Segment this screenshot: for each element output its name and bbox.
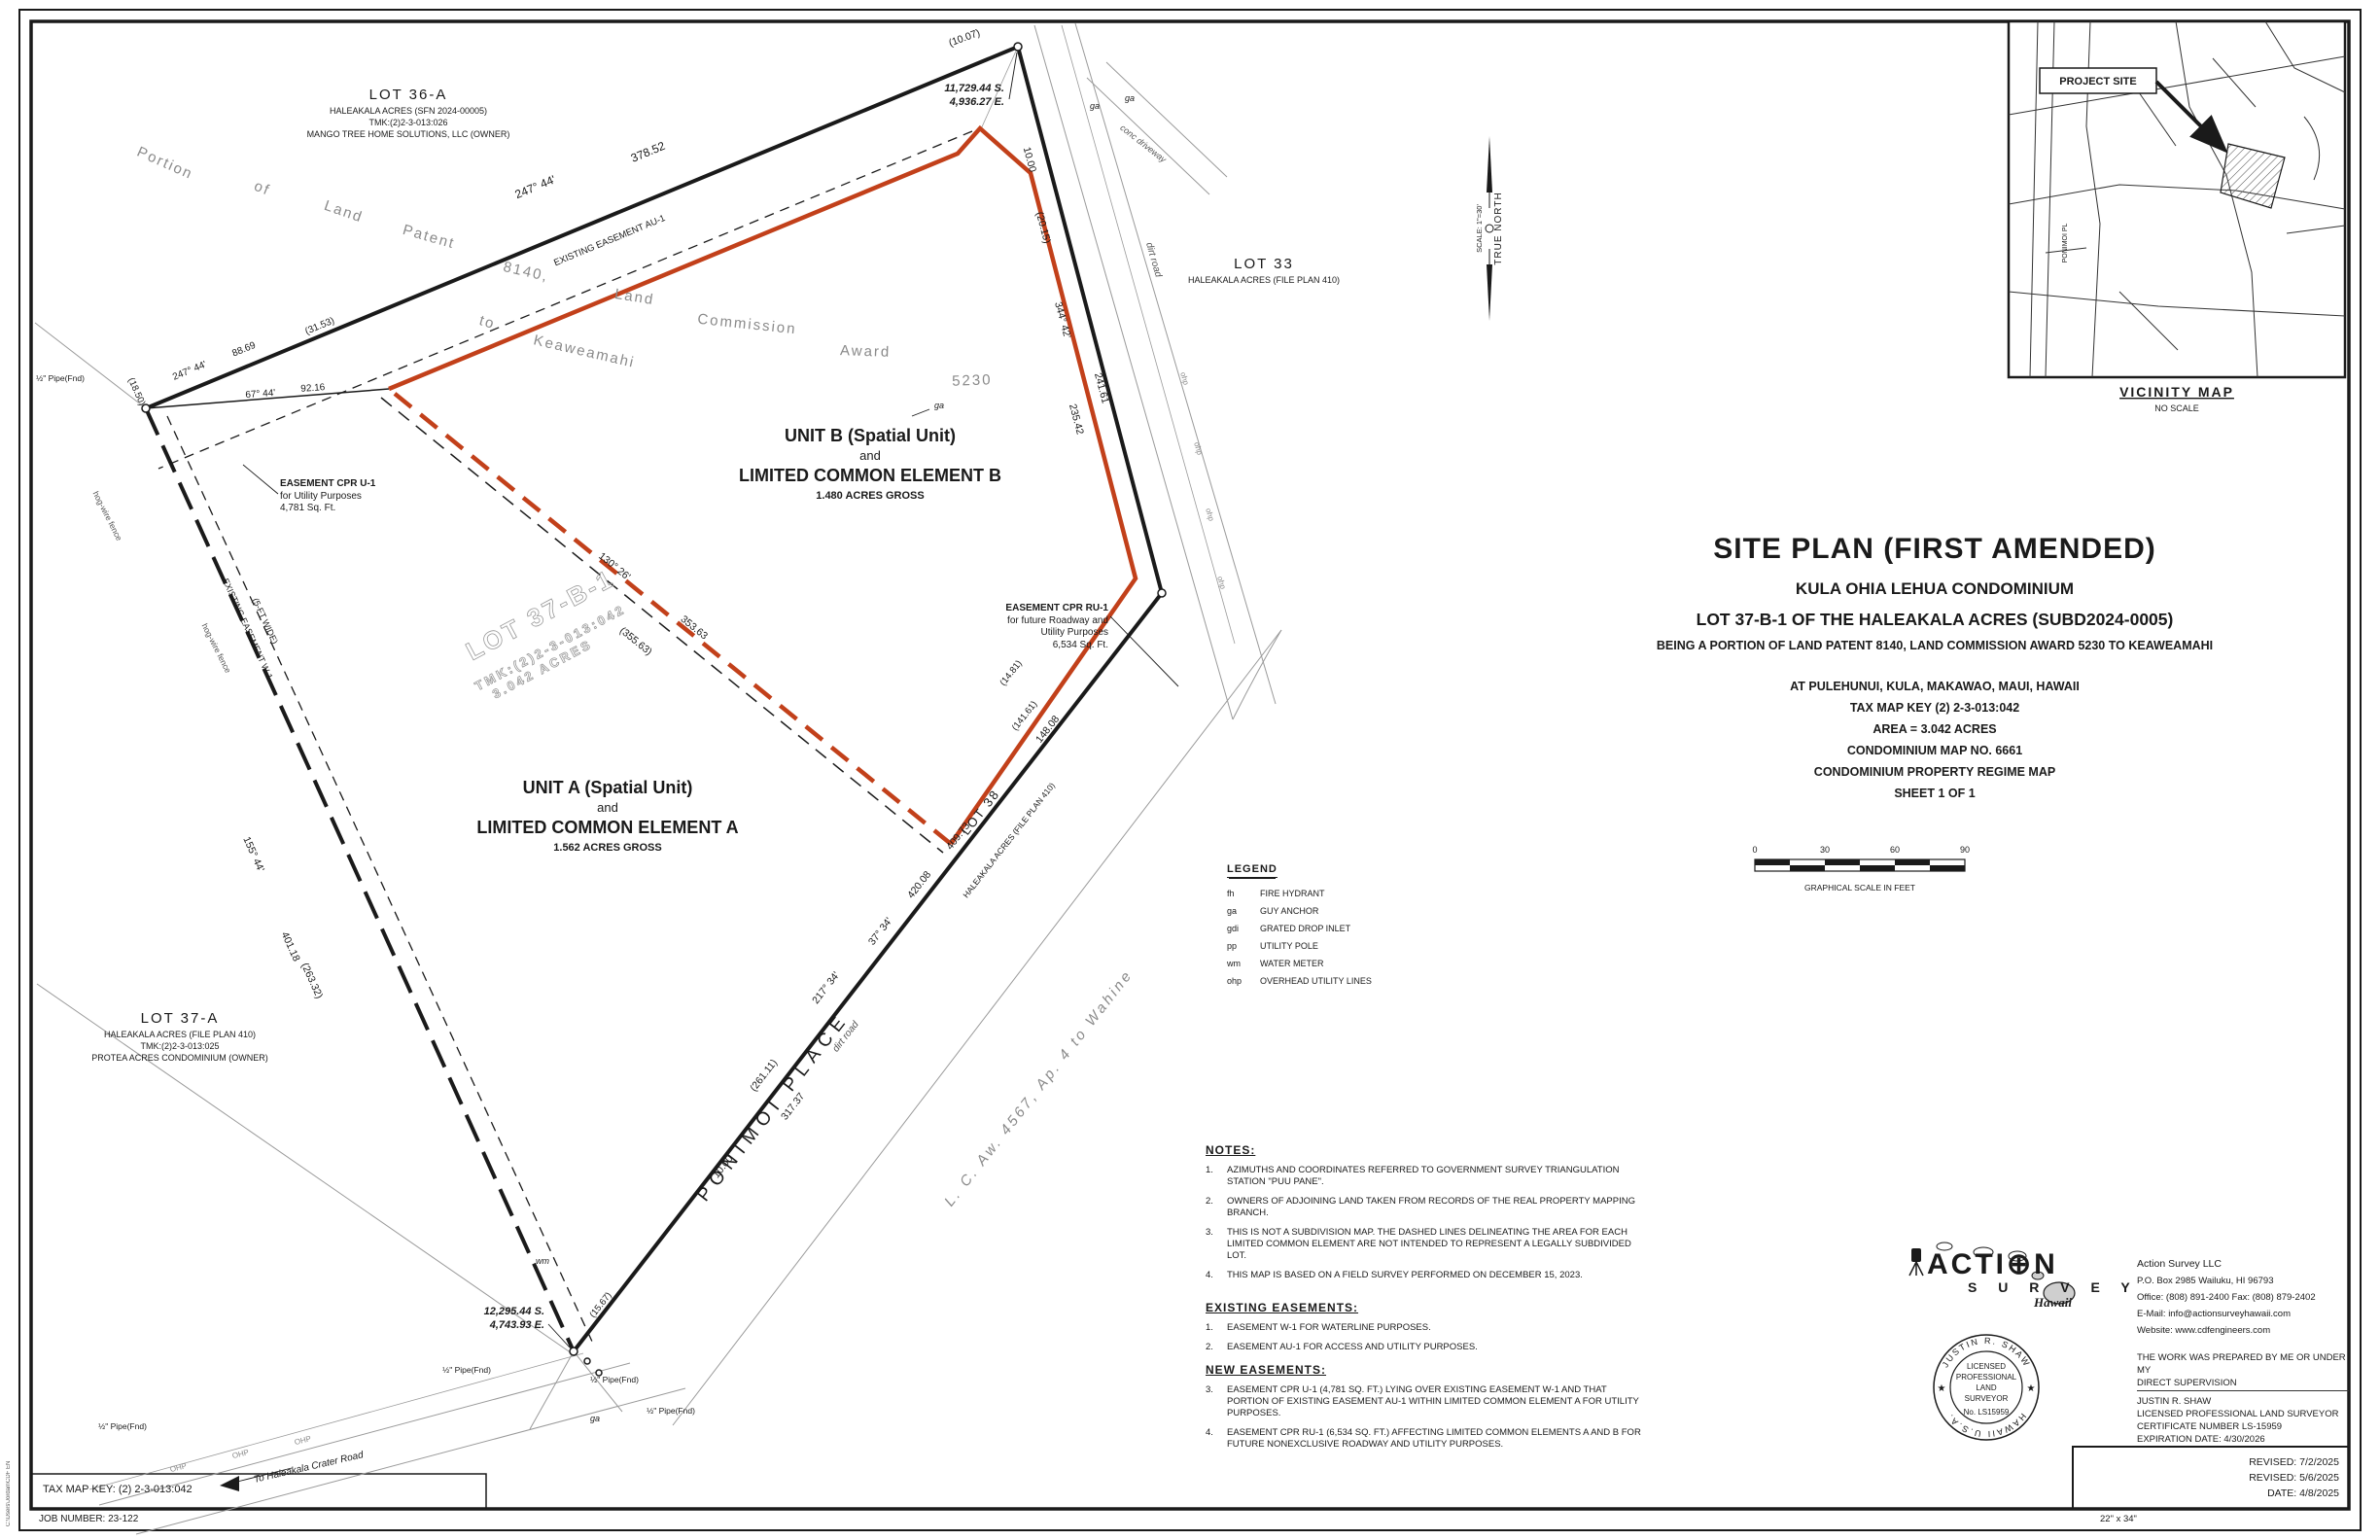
condo-map-line: CONDOMINIUM MAP NO. 6661 [1526,744,2343,757]
unit-a-lce: LIMITED COMMON ELEMENT A [418,818,797,838]
coord-bottom-n: 12,295.44 S. [436,1305,544,1318]
stamp-star-right: ★ [2027,1383,2036,1394]
existing-easements-title: EXISTING EASEMENTS: [1206,1301,1648,1314]
legend-row: gaGUY ANCHOR [1227,902,1470,920]
easement-item: 4.EASEMENT CPR RU-1 (6,534 SQ. FT.) AFFE… [1206,1427,1648,1451]
lot-37a-title: LOT 37-A [53,1009,306,1029]
easement-number: 4. [1206,1427,1227,1451]
legend-label: GRATED DROP INLET [1260,920,1350,937]
surveyor-title: LICENSED PROFESSIONAL LAND SURVEYOR [2137,1408,2349,1420]
legend-label: WATER METER [1260,955,1324,972]
lot-36a-block: LOT 36-A HALEAKALA ACRES (SFN 2024-00005… [224,86,593,140]
firm-logo: ACTI⊕N S U R V E Y Hawaii [1927,1250,2151,1311]
easement-item: 2.EASEMENT AU-1 FOR ACCESS AND UTILITY P… [1206,1342,1648,1353]
right-dist-red: 235.42 [1067,402,1086,436]
ohp-label-s1: OHP [169,1461,188,1474]
easement-item: 1.EASEMENT W-1 FOR WATERLINE PURPOSES. [1206,1322,1648,1334]
tax-map-key-note: TAX MAP KEY: (2) 2-3-013:042 [43,1484,192,1495]
boundary-lot37b1 [146,47,1162,1351]
ponimoi-dist1: 420.08 [905,869,933,901]
lot-37a-line3: TMK:(2)2-3-013:025 [53,1040,306,1052]
note-number: 4. [1206,1270,1227,1281]
bearing-labels: 247° 44' 378.52 EXISTING EASEMENT AU-1 2… [125,27,1111,1320]
logo-action-text: ACTI⊕N [1927,1250,2151,1279]
to-haleakala-label: To Haleakala Crater Road [253,1450,365,1486]
land-patent-arc-text: Portion of Land Patent 8140, Land Commis… [134,144,993,390]
b2-distance: 88.69 [230,340,258,360]
hog-fence-label2: hog-wire fence [200,622,233,675]
to-road-arrowhead [220,1476,239,1491]
corner-coords-top: 11,729.44 S. 4,936.27 E. [902,82,1004,109]
unit-a-area: 1.562 ACRES GROSS [418,842,797,854]
unit-b-and: and [681,446,1060,466]
note-item: 3.THIS IS NOT A SUBDIVISION MAP. THE DAS… [1206,1227,1648,1262]
regime-map-line: CONDOMINIUM PROPERTY REGIME MAP [1526,765,2343,779]
pipe-label-b: ½" Pipe(Fnd) [36,373,85,383]
vicinity-subtitle: NO SCALE [2154,403,2199,413]
cpr-u1-line2: for Utility Purposes [280,491,450,504]
logo-survey-text: S U R V E Y [1968,1279,2151,1295]
note-number: 3. [1206,1227,1227,1262]
legend-row: gdiGRATED DROP INLET [1227,920,1470,937]
condo-name: KULA OHIA LEHUA CONDOMINIUM [1526,579,2343,599]
tie-distance: 92.16 [300,382,326,395]
arc-word: Award [840,342,892,361]
easement-number: 2. [1206,1342,1227,1353]
note-number: 1. [1206,1165,1227,1188]
ohp-label-e3: ohp [1204,507,1215,523]
paren-1007: (10.07) [947,27,981,50]
legend-abbr: fh [1227,885,1260,902]
note-text: THIS IS NOT A SUBDIVISION MAP. THE DASHE… [1227,1227,1648,1262]
scale-tick-60: 60 [1890,845,1900,855]
plan-title: SITE PLAN (FIRST AMENDED) [1526,533,2343,566]
scale-tick-0: 0 [1752,845,1757,855]
leader-lines [237,52,1178,1482]
project-site-label: PROJECT SITE [2059,76,2136,87]
coord-top-n: 11,729.44 S. [902,82,1004,95]
notes-title: NOTES: [1206,1143,1648,1157]
note-item: 4.THIS MAP IS BASED ON A FIELD SURVEY PE… [1206,1270,1648,1281]
note-item: 1.AZIMUTHS AND COORDINATES REFERRED TO G… [1206,1165,1648,1188]
left-distance: 401.18 [279,930,302,963]
new-easements-section: NEW EASEMENTS: 3.EASEMENT CPR U-1 (4,781… [1206,1363,1648,1451]
legend-row: fhFIRE HYDRANT [1227,885,1470,902]
lot-37a-block: LOT 37-A HALEAKALA ACRES (FILE PLAN 410)… [53,1009,306,1064]
lot-36a-title: LOT 36-A [224,86,593,105]
coord-bottom-e: 4,743.93 E. [436,1318,544,1332]
ga-label4: ga [590,1414,600,1423]
sheet-size-note: 22" x 34" [2100,1514,2137,1524]
north-scale-label: SCALE: 1"=30' [1475,204,1484,253]
corner-monuments [142,43,1166,1376]
note-text: AZIMUTHS AND COORDINATES REFERRED TO GOV… [1227,1165,1648,1188]
scale-bar: 0 30 60 90 GRAPHICAL SCALE IN FEET [1752,845,1970,892]
unit-b-area: 1.480 ACRES GROSS [681,490,1060,502]
true-north-arrow: TRUE NORTH SCALE: 1"=30' [1475,136,1504,321]
easement-au1-label: EXISTING EASEMENT AU-1 [552,213,667,268]
legend-abbr: wm [1227,955,1260,972]
unit-b-block: UNIT B (Spatial Unit) and LIMITED COMMON… [681,426,1060,502]
pipe-label-c3: ½" Pipe(Fnd) [647,1406,695,1416]
surveyor-certificate: CERTIFICATE NUMBER LS-15959 [2137,1420,2349,1433]
unit-a-title: UNIT A (Spatial Unit) [418,778,797,798]
legend-label: UTILITY POLE [1260,937,1318,955]
pipe-label-c2: ½" Pipe(Fnd) [590,1375,639,1384]
supervision-statement: THE WORK WAS PREPARED BY ME OR UNDER MY … [2137,1351,2349,1389]
lc-award-label: L. C. Aw. 4567, Ap. 4 to Wahine [941,966,1137,1209]
top-distance: 378.52 [629,139,668,165]
pipe-label-c1: ½" Pipe(Fnd) [442,1365,491,1375]
job-number-note: JOB NUMBER: 23-122 [39,1514,138,1524]
stamp-line2: PROFESSIONAL [1956,1373,2017,1382]
cpr-u1-line3: 4,781 Sq. Ft. [280,503,450,515]
scale-tick-90: 90 [1960,845,1970,855]
arc-word: 5230 [952,371,993,389]
cpr-ru1-line2: for future Roadway and [909,615,1108,628]
ga-label2: ga [1125,93,1135,103]
supervision-line2: DIRECT SUPERVISION [2137,1377,2349,1389]
new-easements-title: NEW EASEMENTS: [1206,1363,1648,1377]
note-item: 2.OWNERS OF ADJOINING LAND TAKEN FROM RE… [1206,1196,1648,1219]
notes-section: NOTES: 1.AZIMUTHS AND COORDINATES REFERR… [1206,1143,1648,1281]
cpr-ru1-line3: Utility Purposes [909,627,1108,640]
ohp-label-s3: OHP [294,1434,312,1447]
surveyor-name: JUSTIN R. SHAW [2137,1395,2349,1408]
paren-1850: (18.50) [125,376,147,407]
legend-title: LEGEND [1227,863,1277,878]
easement-text: EASEMENT AU-1 FOR ACCESS AND UTILITY PUR… [1227,1342,1478,1353]
surveyor-signature-block: JUSTIN R. SHAW LICENSED PROFESSIONAL LAN… [2137,1390,2349,1446]
ga-label3: ga [934,401,944,410]
surveyor-expiration: EXPIRATION DATE: 4/30/2026 [2137,1433,2349,1446]
firm-name: Action Survey LLC [2137,1256,2349,1273]
lot-36a-line2: HALEAKALA ACRES (SFN 2024-00005) [224,105,593,117]
coord-top-e: 4,936.27 E. [902,95,1004,109]
stamp-line5: No. LS15959 [1964,1408,2010,1417]
lot-36a-line3: TMK:(2)2-3-013:026 [224,117,593,128]
location-line: AT PULEHUNUI, KULA, MAKAWAO, MAUI, HAWAI… [1526,680,2343,693]
easement-item: 3.EASEMENT CPR U-1 (4,781 SQ. FT.) LYING… [1206,1384,1648,1419]
legend-abbr: pp [1227,937,1260,955]
easement-text: EASEMENT CPR RU-1 (6,534 SQ. FT.) AFFECT… [1227,1427,1648,1451]
firm-email: E-Mail: info@actionsurveyhawaii.com [2137,1306,2349,1322]
revision-row: REVISED: 7/2/2025 [2090,1454,2339,1470]
legend-row: ppUTILITY POLE [1227,937,1470,955]
legend-abbr: ohp [1227,972,1260,990]
patent-description: BEING A PORTION OF LAND PATENT 8140, LAN… [1526,639,2343,652]
easement-cpr-u1-callout: EASEMENT CPR U-1 for Utility Purposes 4,… [280,478,450,515]
left-bearing: 155° 44' [240,835,266,874]
ga-label1: ga [1090,101,1100,111]
lot-description: LOT 37-B-1 OF THE HALEAKALA ACRES (SUBD2… [1526,610,2343,630]
lot-37a-line2: HALEAKALA ACRES (FILE PLAN 410) [53,1029,306,1040]
left-paren: (263.32) [298,961,325,1000]
vicinity-road-label: PONIMOI PL [2062,223,2069,262]
corner-coords-bottom: 12,295.44 S. 4,743.93 E. [436,1305,544,1332]
ponimoi-place-label: PONIMOI PLACE [693,1008,854,1206]
lot-33-line2: HALEAKALA ACRES (FILE PLAN 410) [1137,274,1390,286]
firm-phones: Office: (808) 891-2400 Fax: (808) 879-24… [2137,1289,2349,1306]
hog-fence-label1: hog-wire fence [91,490,124,542]
conc-driveway-label: conc driveway [1118,122,1168,164]
tie-bearing: 67° 44' [245,388,276,401]
vicinity-title: VICINITY MAP [2119,384,2234,400]
arc-word: of [252,178,273,199]
easement-number: 1. [1206,1322,1227,1334]
right-dist: 241.61 [1092,371,1111,404]
supervision-line1: THE WORK WAS PREPARED BY ME OR UNDER MY [2137,1351,2349,1377]
top-bearing: 247° 44' [513,172,558,201]
note-text: OWNERS OF ADJOINING LAND TAKEN FROM RECO… [1227,1196,1648,1219]
cpr-ru1-title: EASEMENT CPR RU-1 [909,603,1108,615]
existing-easements-section: EXISTING EASEMENTS: 1.EASEMENT W-1 FOR W… [1206,1301,1648,1353]
unit-b-lce: LIMITED COMMON ELEMENT B [681,466,1060,486]
unit-a-block: UNIT A (Spatial Unit) and LIMITED COMMON… [418,778,797,854]
pipe-label-road: ½" Pipe(Fnd) [98,1421,147,1431]
area-line: AREA = 3.042 ACRES [1526,722,2343,736]
note-number: 2. [1206,1196,1227,1219]
lot-33-block: LOT 33 HALEAKALA ACRES (FILE PLAN 410) [1137,255,1390,286]
stamp-line4: SURVEYOR [1965,1394,2009,1403]
scale-caption: GRAPHICAL SCALE IN FEET [1804,883,1915,892]
lot-33-title: LOT 33 [1137,255,1390,274]
legend-row: ohpOVERHEAD UTILITY LINES [1227,972,1470,990]
unit-b-title: UNIT B (Spatial Unit) [681,426,1060,446]
cpr-u1-title: EASEMENT CPR U-1 [280,478,450,491]
revision-block: REVISED: 7/2/2025 REVISED: 5/6/2025 DATE… [2090,1454,2339,1501]
revision-row: DATE: 4/8/2025 [2090,1486,2339,1501]
logo-hawaii-text: Hawaii [2034,1295,2151,1311]
firm-contact-block: Action Survey LLC P.O. Box 2985 Wailuku,… [2137,1256,2349,1339]
diag-paren: (355.63) [617,625,654,658]
true-north-label: TRUE NORTH [1493,192,1504,264]
stamp-line3: LAND [1976,1383,1997,1392]
parcel-id-text: LOT 37-B-1 TMK:(2)2-3-013:042 3.042 ACRE… [461,563,628,701]
surveyor-stamp: JUSTIN R. SHAW HAWAII U.S.A. ★ ★ LICENSE… [1934,1335,2039,1440]
cpr-ru1-line4: 6,534 Sq. Ft. [909,640,1108,652]
title-block: SITE PLAN (FIRST AMENDED) KULA OHIA LEHU… [1526,533,2343,800]
b2-bearing: 247° 44' [171,360,208,383]
legend-label: GUY ANCHOR [1260,902,1318,920]
scale-tick-30: 30 [1820,845,1830,855]
ponimoi-bearing1: 217° 34' [810,969,842,1006]
lot-37a-line4: PROTEA ACRES CONDOMINIUM (OWNER) [53,1052,306,1064]
legend-label: FIRE HYDRANT [1260,885,1325,902]
legend-abbr: ga [1227,902,1260,920]
legend-row: wmWATER METER [1227,955,1470,972]
easement-dashed-lines [146,131,972,1344]
lot-36a-line4: MANGO TREE HOME SOLUTIONS, LLC (OWNER) [224,128,593,140]
note-text: THIS MAP IS BASED ON A FIELD SURVEY PERF… [1227,1270,1583,1281]
stamp-line1: LICENSED [1967,1362,2006,1371]
arc-word: Keaweamahi [532,332,637,371]
ohp-label-e4: ohp [1215,576,1227,591]
sheet-line: SHEET 1 OF 1 [1526,787,2343,800]
arc-word: Commission [697,311,798,338]
revision-row: REVISED: 5/6/2025 [2090,1470,2339,1486]
firm-website: Website: www.cdfengineers.com [2137,1322,2349,1339]
arc-word: Patent [401,222,457,253]
legend-label: OVERHEAD UTILITY LINES [1260,972,1372,990]
arc-word: Land [613,286,656,308]
paren-1481: (14.81) [997,658,1024,687]
legend: LEGEND fhFIRE HYDRANT gaGUY ANCHOR gdiGR… [1227,859,1470,990]
lot38-sublabel: HALEAKALA ACRES (FILE PLAN 410) [961,781,1057,899]
easement-number: 3. [1206,1384,1227,1419]
arc-word: Land [322,197,366,227]
paren-3153: (31.53) [303,316,335,337]
tmk-line: TAX MAP KEY (2) 2-3-013:042 [1526,701,2343,715]
unit-a-and: and [418,798,797,818]
stamp-star-left: ★ [1938,1383,1946,1394]
firm-address: P.O. Box 2985 Wailuku, HI 96793 [2137,1273,2349,1289]
arc-word: Portion [134,144,195,184]
easement-cpr-ru1-callout: EASEMENT CPR RU-1 for future Roadway and… [909,603,1108,651]
easement-text: EASEMENT W-1 FOR WATERLINE PURPOSES. [1227,1322,1431,1334]
paren-14161: (141.61) [1010,699,1039,733]
legend-abbr: gdi [1227,920,1260,937]
vicinity-map: PROJECT SITE PONIMOI PL VICINITY MAP NO … [2009,21,2345,413]
easement-text: EASEMENT CPR U-1 (4,781 SQ. FT.) LYING O… [1227,1384,1648,1419]
arc-word: 8140, [502,259,550,285]
wm-label: wm [536,1256,549,1266]
ohp-label-e1: ohp [1178,371,1190,387]
paren-2015: (20.15) [1033,211,1053,245]
plan-sheet: 247° 44' 378.52 EXISTING EASEMENT AU-1 2… [0,0,2380,1540]
plot-file-path: C:\Users\Jordan\CDF EN [6,1118,12,1526]
